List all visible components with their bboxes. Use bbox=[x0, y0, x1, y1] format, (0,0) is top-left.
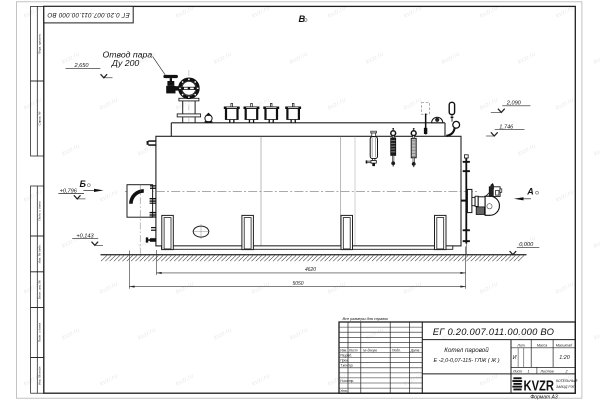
svg-text:2,090: 2,090 bbox=[506, 100, 522, 106]
svg-text:ЗАВОД РЭП: ЗАВОД РЭП bbox=[556, 385, 576, 389]
svg-text:Е -2,0-0,07-115- ГЛЖ ( Ж ): Е -2,0-0,07-115- ГЛЖ ( Ж ) bbox=[433, 358, 499, 364]
svg-text:1: 1 bbox=[528, 370, 530, 374]
svg-text:5050: 5050 bbox=[292, 281, 303, 287]
svg-text:Лист: Лист bbox=[512, 370, 522, 374]
svg-text:Утв.: Утв. bbox=[340, 389, 348, 393]
svg-text:Перв. примен.: Перв. примен. bbox=[38, 33, 42, 54]
svg-text:КОТЕЛЬНЫЙ: КОТЕЛЬНЫЙ bbox=[556, 379, 578, 383]
svg-text:Листов: Листов bbox=[540, 370, 554, 374]
svg-text:1,746: 1,746 bbox=[499, 124, 514, 130]
svg-text:0,000: 0,000 bbox=[519, 242, 534, 248]
svg-text:KVZR: KVZR bbox=[524, 377, 555, 394]
svg-text:+0,796: +0,796 bbox=[60, 189, 78, 195]
svg-text:Н.контр.: Н.контр. bbox=[340, 379, 354, 383]
svg-text:Лист: Лист bbox=[348, 348, 358, 352]
svg-text:+0,143: +0,143 bbox=[76, 233, 94, 239]
svg-text:Подп.: Подп. bbox=[392, 348, 401, 352]
svg-text:А: А bbox=[526, 186, 534, 196]
svg-text:Справ. №: Справ. № bbox=[38, 111, 42, 126]
svg-text:Инв. № подл.: Инв. № подл. bbox=[38, 366, 42, 385]
svg-text:1:20: 1:20 bbox=[559, 355, 570, 361]
svg-text:№ докум.: № докум. bbox=[363, 348, 378, 352]
svg-text:Дата: Дата bbox=[410, 348, 420, 352]
svg-text:4620: 4620 bbox=[305, 267, 316, 273]
svg-text:Т.контр.: Т.контр. bbox=[340, 364, 353, 368]
svg-text:Масштаб: Масштаб bbox=[556, 343, 573, 347]
svg-text:Инв. № дубл.: Инв. № дубл. bbox=[38, 244, 42, 263]
svg-text:Лит.: Лит. bbox=[516, 343, 525, 347]
svg-text:ЕГ 0.20.007.011.00.000 ВО: ЕГ 0.20.007.011.00.000 ВО bbox=[47, 11, 129, 18]
svg-text:Ду 200: Ду 200 bbox=[111, 58, 140, 68]
svg-text:Б: Б bbox=[80, 179, 87, 189]
svg-text:2: 2 bbox=[565, 370, 568, 374]
svg-text:Взам. инв. №: Взам. инв. № bbox=[38, 279, 42, 299]
svg-text:ЕГ 0.20.007.011.00.000 ВО: ЕГ 0.20.007.011.00.000 ВО bbox=[433, 326, 555, 337]
svg-text:Подп. и дата: Подп. и дата bbox=[38, 201, 42, 221]
svg-text:И: И bbox=[513, 355, 517, 361]
svg-text:Разраб.: Разраб. bbox=[340, 354, 352, 358]
svg-text:Подп. и дата: Подп. и дата bbox=[38, 323, 42, 343]
svg-text:Изм.: Изм. bbox=[340, 348, 347, 352]
svg-text:Пров.: Пров. bbox=[340, 359, 349, 363]
svg-text:Формат А3: Формат А3 bbox=[530, 394, 558, 400]
svg-text:Котел паровой: Котел паровой bbox=[444, 347, 489, 354]
svg-text:Все размеры для справок: Все размеры для справок bbox=[343, 316, 389, 321]
svg-text:Масса: Масса bbox=[537, 343, 547, 347]
svg-text:2,650: 2,650 bbox=[74, 63, 90, 69]
